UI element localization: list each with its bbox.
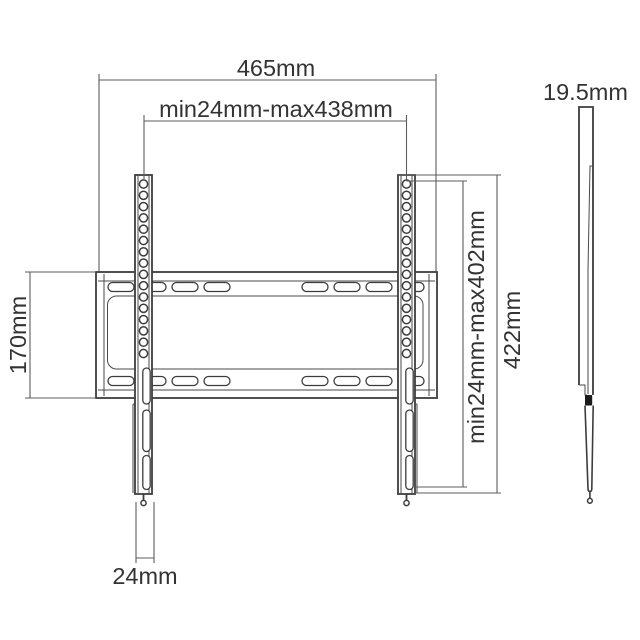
dim-rail-width: 24mm bbox=[112, 502, 177, 589]
left-vesa-rail bbox=[133, 175, 152, 506]
side-profile-bottom-step bbox=[579, 385, 587, 395]
dim-vesa-width-label: min24mm-max438mm bbox=[159, 96, 393, 122]
dim-vesa-height-label: min24mm-max402mm bbox=[463, 210, 489, 444]
bracket-dimension-diagram: 465mm min24mm-max438mm 170mm min24mm-max… bbox=[0, 0, 640, 640]
left-arm-slots bbox=[143, 368, 150, 490]
dim-total-width-label: 465mm bbox=[237, 55, 315, 81]
right-arm-slots bbox=[406, 368, 413, 490]
technical-drawing-canvas: 465mm min24mm-max438mm 170mm min24mm-max… bbox=[0, 0, 640, 640]
dim-rail-width-label: 24mm bbox=[112, 563, 177, 589]
dim-total-height-label: 422mm bbox=[499, 291, 525, 369]
side-lower-arm bbox=[585, 406, 593, 492]
right-locking-pin bbox=[404, 494, 409, 506]
dim-profile-depth-label: 19.5mm bbox=[543, 79, 628, 105]
dim-plate-height-label: 170mm bbox=[5, 296, 31, 374]
right-vesa-rail bbox=[398, 175, 417, 506]
side-view bbox=[579, 107, 593, 503]
side-profile-outline bbox=[579, 107, 593, 395]
left-locking-pin bbox=[141, 494, 146, 506]
side-hook-clip bbox=[585, 395, 592, 406]
dim-vesa-width: min24mm-max438mm bbox=[144, 96, 407, 179]
dim-plate-height: 170mm bbox=[5, 272, 96, 398]
side-pin-head bbox=[588, 498, 593, 503]
front-view bbox=[96, 175, 437, 506]
dim-profile-depth: 19.5mm bbox=[543, 79, 628, 105]
